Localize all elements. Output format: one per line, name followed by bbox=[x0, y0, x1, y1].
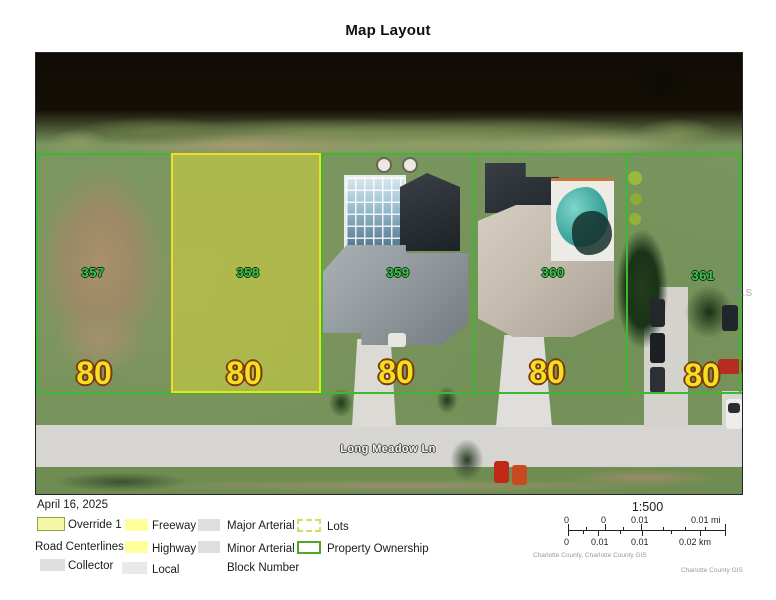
legend-label-highway: Highway bbox=[152, 543, 196, 555]
red-car bbox=[494, 461, 509, 483]
scale-km-tick-0: 0 bbox=[564, 537, 569, 547]
legend-group-block-number: Block Number bbox=[227, 562, 299, 574]
legend-swatch-minor-arterial bbox=[198, 541, 220, 553]
parcel-line-vertical bbox=[626, 153, 628, 394]
parcel-line-vertical bbox=[473, 153, 475, 394]
street-name-label: Long Meadow Ln bbox=[318, 443, 458, 455]
legend-label-local: Local bbox=[152, 564, 180, 576]
legend-swatch-local bbox=[122, 562, 147, 574]
parcel-line-vertical bbox=[321, 153, 323, 394]
parcel-line-horizontal bbox=[36, 392, 742, 394]
house-roof-gray bbox=[320, 245, 468, 345]
yard-feature bbox=[376, 157, 392, 173]
credit-left: Charlotte County, Charlotte County GIS bbox=[533, 552, 647, 559]
legend-label-collector: Collector bbox=[68, 560, 113, 572]
parked-car bbox=[722, 305, 738, 331]
frontage-label-358: 80 bbox=[204, 355, 284, 392]
credit-right: Charlotte County GIS bbox=[681, 567, 743, 574]
frontage-label-359: 80 bbox=[356, 354, 436, 391]
scale-km-unit: 0.02 km bbox=[679, 537, 711, 547]
map-canvas: 357 358 359 360 361 80 80 80 80 80 Long … bbox=[35, 52, 743, 495]
page-title: Map Layout bbox=[0, 22, 776, 39]
car-windshield bbox=[728, 403, 740, 413]
map-date: April 16, 2025 bbox=[37, 499, 108, 511]
scale-ruler bbox=[568, 524, 726, 538]
bush bbox=[629, 213, 641, 225]
legend-label-lots: Lots bbox=[327, 521, 349, 533]
frontage-label-360: 80 bbox=[507, 354, 587, 391]
legend-label-minor-arterial: Minor Arterial bbox=[227, 543, 295, 555]
scale-km-tick-001b: 0.01 bbox=[631, 537, 649, 547]
pool-enclosure bbox=[344, 175, 406, 253]
parcel-line-vertical bbox=[36, 153, 38, 394]
legend-label-freeway: Freeway bbox=[152, 520, 196, 532]
palm-shadow bbox=[628, 53, 698, 115]
frontage-label-361: 80 bbox=[662, 357, 742, 394]
legend-label-override-1: Override 1 bbox=[68, 519, 122, 531]
scale-ratio: 1:500 bbox=[555, 500, 740, 514]
legend-label-major-arterial: Major Arterial bbox=[227, 520, 295, 532]
legend-label-property-ownership: Property Ownership bbox=[327, 543, 429, 555]
scale-ruler-line bbox=[568, 530, 726, 531]
parcel-number-358: 358 bbox=[218, 265, 278, 280]
roadside-grass bbox=[36, 467, 742, 494]
dark-roof-section bbox=[400, 173, 460, 251]
legend-swatch-collector bbox=[40, 559, 65, 571]
yard-feature bbox=[402, 157, 418, 173]
bush bbox=[628, 171, 642, 185]
parked-car bbox=[650, 299, 665, 327]
bush bbox=[630, 193, 642, 205]
red-car bbox=[512, 465, 527, 485]
parcel-number-361: 361 bbox=[673, 268, 733, 283]
legend-swatch-major-arterial bbox=[198, 519, 220, 531]
entry-porch bbox=[388, 333, 406, 347]
legend-swatch-highway bbox=[125, 541, 148, 553]
watermark: MLS bbox=[730, 288, 753, 299]
frontage-label-357: 80 bbox=[54, 355, 134, 392]
parcel-number-360: 360 bbox=[523, 265, 583, 280]
brush-strip bbox=[36, 111, 742, 163]
scale-km-tick-001a: 0.01 bbox=[591, 537, 609, 547]
parcel-line-horizontal bbox=[36, 153, 742, 155]
legend-swatch-lots bbox=[297, 519, 321, 532]
legend-swatch-freeway bbox=[125, 519, 148, 531]
legend-swatch-override-1 bbox=[37, 517, 65, 531]
legend-group-road-centerlines: Road Centerlines bbox=[35, 541, 124, 553]
palm-tree bbox=[432, 381, 462, 419]
tree bbox=[616, 229, 668, 349]
palm-shadow bbox=[444, 431, 490, 489]
parcel-number-357: 357 bbox=[63, 265, 123, 280]
palm-tree bbox=[324, 383, 358, 423]
legend-swatch-property-ownership bbox=[297, 541, 321, 554]
map-layout-page: Map Layout bbox=[0, 0, 776, 600]
parcel-number-359: 359 bbox=[368, 265, 428, 280]
